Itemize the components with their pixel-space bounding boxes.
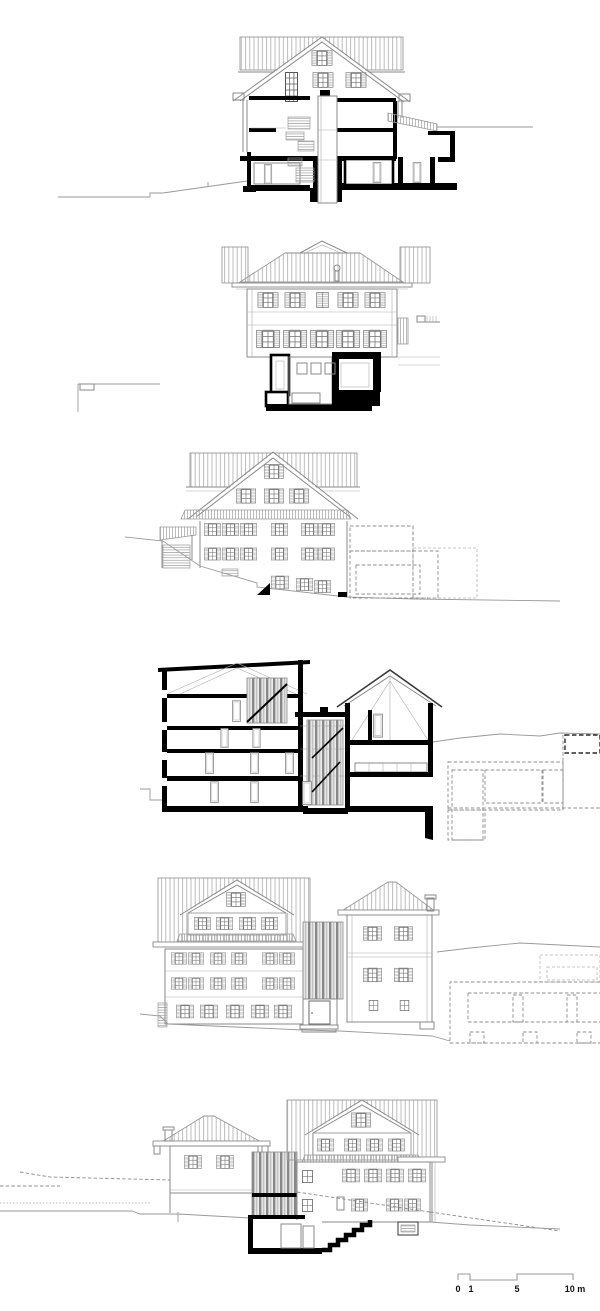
right-main-house bbox=[287, 1100, 560, 1231]
dashed-underground-structures bbox=[433, 733, 600, 840]
lower-window-row bbox=[256, 330, 386, 348]
first-floor-windows bbox=[171, 977, 295, 989]
upper-window-row bbox=[258, 292, 385, 308]
elevator-shaft bbox=[318, 96, 337, 203]
drawing-gable-elevation bbox=[125, 452, 560, 601]
upper-window-row bbox=[204, 523, 334, 536]
scale-label-5: 5 bbox=[514, 1284, 519, 1294]
right-house bbox=[338, 882, 439, 1029]
left-terrain bbox=[78, 384, 160, 412]
timber-slat-link bbox=[303, 922, 343, 999]
hip-roof bbox=[240, 253, 403, 282]
entrance-door bbox=[300, 999, 338, 1032]
drawing-side-elevation bbox=[78, 241, 440, 412]
drawing-sheet: 0 1 5 10 m bbox=[0, 0, 600, 1311]
dashed-annex-outline bbox=[350, 526, 477, 598]
right-side-details bbox=[398, 316, 440, 365]
right-building-section bbox=[337, 670, 442, 840]
scale-bar: 0 1 5 10 m bbox=[455, 1274, 585, 1294]
basement-section-cut bbox=[266, 352, 381, 411]
elevations-and-sections-figure: 0 1 5 10 m bbox=[0, 0, 600, 1311]
scale-label-0: 0 bbox=[455, 1284, 460, 1294]
entry-porch-stairs bbox=[160, 527, 196, 568]
drawing-cross-section bbox=[58, 37, 533, 203]
scale-bar-line bbox=[458, 1274, 573, 1280]
pent-roof bbox=[181, 510, 351, 519]
gable-floor-windows bbox=[236, 488, 308, 503]
scale-label-1: 1 bbox=[468, 1284, 473, 1294]
right-annex-section bbox=[388, 113, 533, 188]
ground-floor-windows bbox=[176, 1005, 291, 1018]
lower-window-row bbox=[204, 547, 334, 560]
stair-link-section bbox=[295, 707, 350, 814]
second-floor-windows bbox=[171, 952, 295, 964]
drawing-street-elevation bbox=[140, 878, 600, 1043]
scale-label-10m: 10 m bbox=[565, 1284, 586, 1294]
left-building-section bbox=[158, 660, 310, 812]
drawing-rear-elevation bbox=[0, 1100, 560, 1254]
dashed-garage-outline bbox=[437, 943, 600, 1043]
drawing-longitudinal-section bbox=[140, 660, 600, 840]
timber-slat-link bbox=[252, 1152, 297, 1218]
terrain-left bbox=[140, 789, 162, 800]
